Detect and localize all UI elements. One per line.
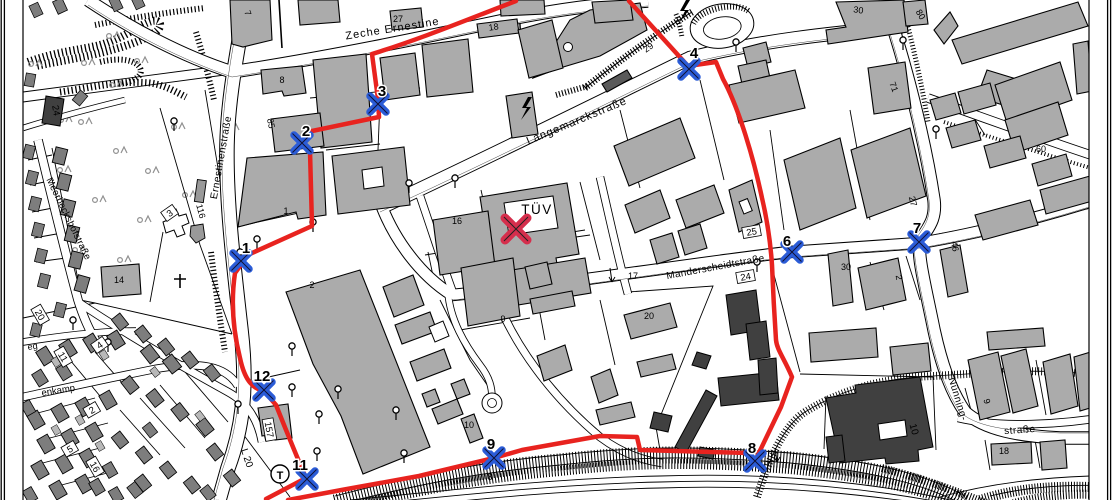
svg-text:12: 12 — [254, 368, 271, 385]
svg-text:24: 24 — [740, 271, 752, 284]
svg-text:6: 6 — [783, 233, 791, 250]
svg-text:8: 8 — [748, 440, 756, 457]
svg-text:straße: straße — [1004, 424, 1036, 437]
svg-text:1: 1 — [242, 240, 250, 257]
svg-text:7: 7 — [913, 220, 921, 237]
svg-text:18: 18 — [488, 21, 499, 32]
svg-text:9: 9 — [500, 314, 505, 324]
svg-text:60: 60 — [1036, 144, 1046, 154]
svg-text:11: 11 — [292, 457, 308, 474]
svg-text:30: 30 — [853, 4, 864, 15]
svg-text:9: 9 — [487, 436, 495, 453]
svg-text:20: 20 — [644, 311, 654, 321]
svg-text:85: 85 — [265, 117, 277, 129]
svg-text:14: 14 — [114, 275, 124, 285]
svg-text:1: 1 — [283, 206, 288, 216]
svg-text:24: 24 — [49, 104, 62, 116]
svg-text:18: 18 — [999, 446, 1009, 456]
svg-text:17: 17 — [628, 271, 638, 281]
svg-text:46: 46 — [949, 241, 961, 253]
svg-text:TÜV: TÜV — [521, 202, 553, 217]
svg-text:10: 10 — [464, 420, 474, 430]
svg-text:T: T — [277, 470, 284, 482]
svg-text:25: 25 — [746, 226, 758, 239]
svg-text:30: 30 — [841, 262, 851, 272]
svg-text:2: 2 — [302, 123, 310, 140]
svg-text:27: 27 — [393, 14, 403, 24]
svg-text:8: 8 — [279, 75, 284, 85]
svg-text:4: 4 — [690, 45, 699, 62]
svg-text:2: 2 — [309, 280, 314, 290]
svg-text:eg: eg — [27, 341, 38, 352]
svg-text:8: 8 — [487, 472, 492, 482]
svg-text:3: 3 — [378, 83, 386, 100]
svg-text:16: 16 — [452, 216, 462, 226]
